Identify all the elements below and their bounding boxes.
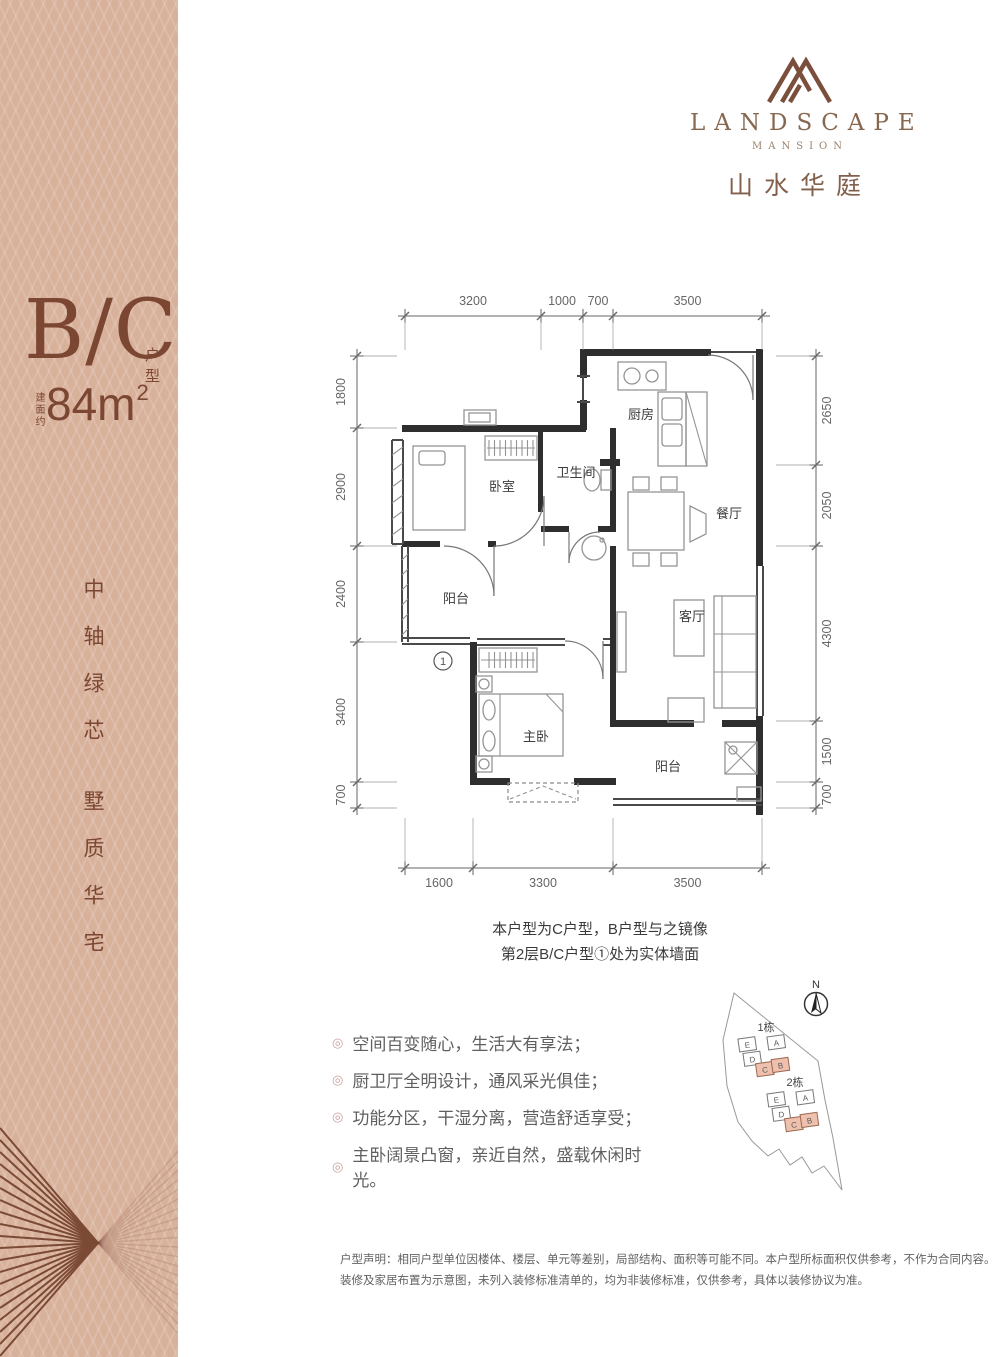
area-number: 84m <box>46 378 135 430</box>
furniture-line <box>392 447 403 455</box>
sitemap-svg: N1栋EDACB2栋EDACB <box>700 955 900 1235</box>
wall <box>574 778 616 785</box>
dim-label-bottom: 1600 <box>425 876 453 890</box>
furniture <box>661 477 677 490</box>
furniture <box>633 553 649 566</box>
furniture-line <box>392 511 403 519</box>
wall <box>580 400 587 430</box>
feature-text: 厨卫厅全明设计，通风采光俱佳； <box>352 1067 607 1092</box>
wall <box>756 349 763 566</box>
dim-label-top: 3500 <box>674 294 702 308</box>
furniture-line <box>392 495 403 503</box>
wall <box>600 459 620 466</box>
fan-line <box>98 1243 178 1333</box>
dim-label-left: 700 <box>334 785 348 806</box>
furniture <box>668 698 704 722</box>
building-cluster: EDACB <box>767 1088 819 1134</box>
furniture <box>714 596 756 708</box>
building-label: 2栋 <box>786 1075 803 1089</box>
furniture-line <box>686 392 707 466</box>
fan-line <box>0 1243 98 1284</box>
wall <box>580 356 587 378</box>
decorative-sidebar: B/C 户型 建面约 84m2 中轴绿芯 墅质华宅 <box>0 0 178 1357</box>
furniture <box>419 451 445 465</box>
furniture-line <box>546 694 563 712</box>
building-label: 1栋 <box>757 1020 774 1034</box>
fan-line <box>0 1243 98 1320</box>
feature-item: ◎主卧阔景凸窗，亲近自然，盛载休闲时光。 <box>332 1141 662 1191</box>
dim-label-right: 4300 <box>820 620 834 648</box>
feature-text: 功能分区，干湿分离，营造舒适享受； <box>352 1104 641 1129</box>
poster-page: B/C 户型 建面约 84m2 中轴绿芯 墅质华宅 LANDSCAPE MANS… <box>0 0 1000 1357</box>
dim-label-right: 2050 <box>820 492 834 520</box>
wall <box>610 546 616 723</box>
mountain-logo-icon <box>762 48 838 104</box>
disclaimer-line-2: 装修及家居布置为示意图，未列入装修标准清单的，均为非装修标准，仅供参考，具体以装… <box>340 1271 990 1292</box>
fan-line <box>0 1243 98 1356</box>
furniture <box>479 694 563 756</box>
room-label-kitchen: 厨房 <box>628 407 654 422</box>
bullet-icon: ◎ <box>332 1160 343 1173</box>
furniture-line <box>392 479 403 487</box>
bullet-icon: ◎ <box>332 1036 343 1049</box>
furniture <box>469 413 490 422</box>
furniture <box>483 700 495 720</box>
disclaimer-line-1: 户型声明：相同户型单位因楼体、楼层、单元等差别，局部结构、面积等可能不同。本户型… <box>340 1250 990 1271</box>
furniture <box>646 370 658 382</box>
floorplan-note-1: 本户型为C户型，B户型与之镜像 <box>380 917 820 942</box>
wall <box>538 428 543 512</box>
area-exponent: 2 <box>136 380 148 405</box>
dim-label-right: 700 <box>820 785 834 806</box>
dim-label-bottom: 3300 <box>529 876 557 890</box>
feature-item: ◎空间百变随心，生活大有享法； <box>332 1030 662 1055</box>
furniture <box>601 470 611 490</box>
room-label-dining: 餐厅 <box>716 506 742 521</box>
dim-label-top: 1000 <box>548 294 576 308</box>
dim-label-left: 2900 <box>334 473 348 501</box>
door-swing <box>444 546 494 596</box>
furniture <box>582 536 606 560</box>
dim-label-top: 700 <box>588 294 609 308</box>
furniture <box>662 424 682 446</box>
compass-needle <box>811 993 816 1013</box>
compass-north-label: N <box>812 979 820 991</box>
room-label-bedroom: 卧室 <box>489 479 515 494</box>
floorplan-svg: 厨房卧室卫生间餐厅阳台客厅主卧阳台13200100070035001600330… <box>330 270 860 895</box>
furniture <box>617 612 626 672</box>
dim-label-left: 1800 <box>334 378 348 406</box>
door-swing <box>494 496 544 546</box>
furniture <box>483 731 495 751</box>
furniture <box>662 398 682 420</box>
dim-label-bottom: 3500 <box>674 876 702 890</box>
brand-name-cn: 山水华庭 <box>690 166 910 202</box>
fan-line <box>98 1243 178 1305</box>
room-label-bath: 卫生间 <box>556 465 595 480</box>
wall <box>470 778 510 785</box>
furniture <box>413 446 465 530</box>
wall <box>598 526 610 532</box>
furniture <box>618 362 666 390</box>
fan-line <box>0 1152 98 1243</box>
furniture-line <box>392 463 403 471</box>
dim-label-right: 2650 <box>820 397 834 425</box>
marker-number: 1 <box>440 656 446 668</box>
feature-list: ◎空间百变随心，生活大有享法； ◎厨卫厅全明设计，通风采光俱佳； ◎功能分区，干… <box>332 1030 662 1203</box>
feature-text: 主卧阔景凸窗，亲近自然，盛载休闲时光。 <box>352 1141 662 1191</box>
door-swing <box>565 641 603 679</box>
furniture <box>661 553 677 566</box>
room-label-living: 客厅 <box>679 609 705 624</box>
feature-text: 空间百变随心，生活大有享法； <box>352 1030 590 1055</box>
brand-name-sub: MANSION <box>690 141 910 152</box>
brand-logo: LANDSCAPE MANSION 山水华庭 <box>690 48 910 202</box>
bullet-icon: ◎ <box>332 1073 343 1086</box>
wall <box>580 349 711 356</box>
brand-name-en: LANDSCAPE <box>690 110 910 136</box>
bullet-icon: ◎ <box>332 1110 343 1123</box>
room-label-balcony_w: 阳台 <box>443 591 469 606</box>
room-label-balcony_s: 阳台 <box>655 759 681 774</box>
furniture-line <box>392 527 403 535</box>
fan-line <box>98 1170 178 1243</box>
dim-label-right: 1500 <box>820 738 834 766</box>
wall <box>402 425 586 432</box>
dim-label-left: 2400 <box>334 580 348 608</box>
furniture <box>690 506 706 542</box>
feature-item: ◎厨卫厅全明设计，通风采光俱佳； <box>332 1067 662 1092</box>
dim-label-top: 3200 <box>459 294 487 308</box>
furniture <box>600 538 604 542</box>
furniture <box>479 679 489 689</box>
dim-label-left: 3400 <box>334 698 348 726</box>
furniture <box>633 477 649 490</box>
bay-window <box>510 786 576 799</box>
fan-line <box>98 1180 178 1243</box>
wall <box>541 526 569 532</box>
slogan-line-2: 墅质华宅 <box>77 790 107 978</box>
disclaimer: 户型声明：相同户型单位因楼体、楼层、单元等差别，局部结构、面积等可能不同。本户型… <box>340 1250 990 1292</box>
fan-line <box>0 1164 98 1243</box>
area-value: 84m2 <box>46 377 148 431</box>
area-prefix: 建面约 <box>31 392 46 428</box>
furniture <box>628 492 684 550</box>
wall <box>610 720 694 727</box>
wall <box>722 720 763 727</box>
furniture <box>479 759 489 769</box>
building-cluster: EDACB <box>738 1033 790 1079</box>
slogan-line-1: 中轴绿芯 <box>77 578 107 766</box>
feature-item: ◎功能分区，干湿分离，营造舒适享受； <box>332 1104 662 1129</box>
furniture <box>624 368 640 384</box>
door-swing <box>708 355 753 400</box>
compass-needle <box>816 993 821 1013</box>
room-label-master: 主卧 <box>523 729 549 744</box>
fan-line <box>98 1243 178 1276</box>
